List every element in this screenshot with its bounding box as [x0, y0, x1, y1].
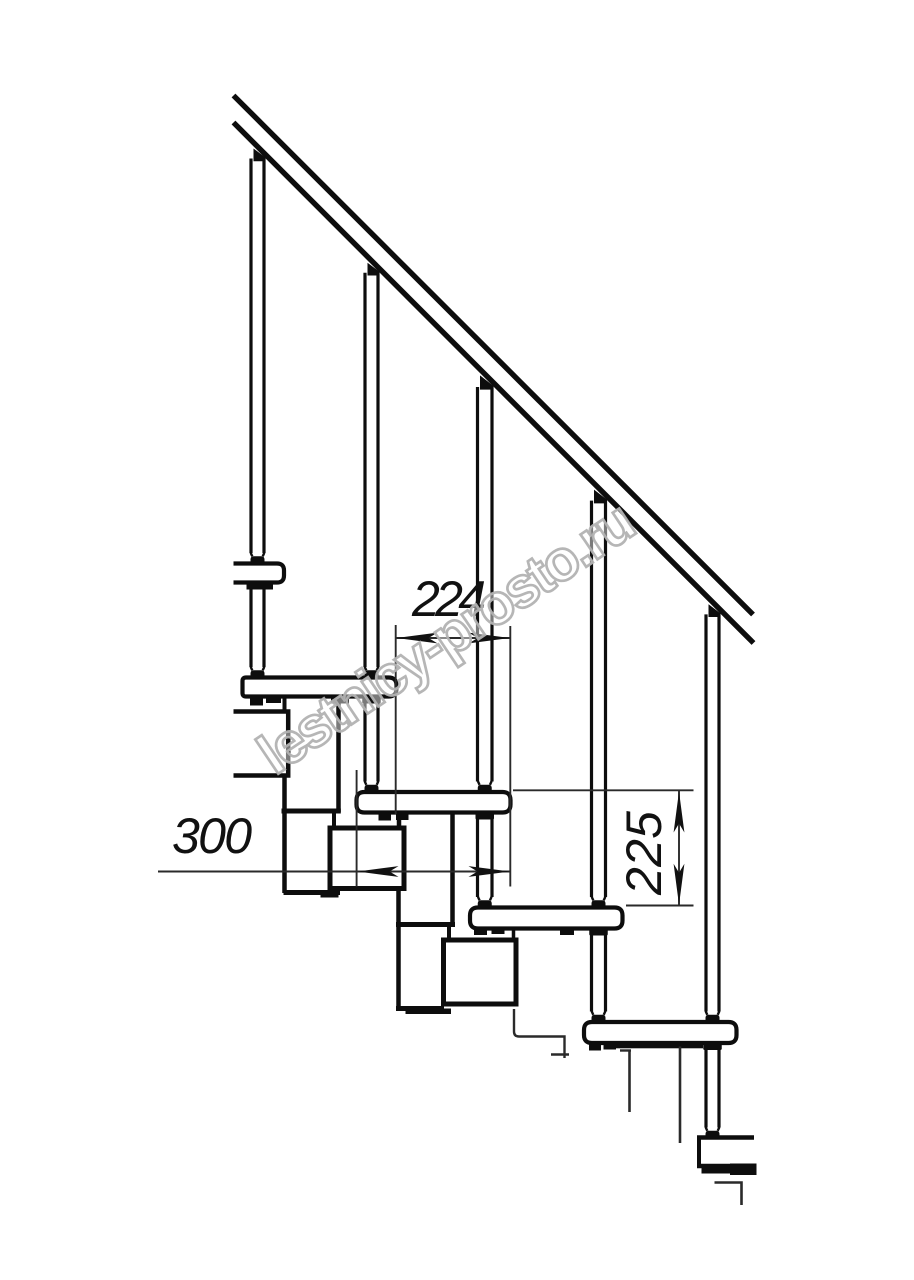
- svg-text:225: 225: [616, 811, 672, 896]
- svg-text:300: 300: [172, 808, 252, 864]
